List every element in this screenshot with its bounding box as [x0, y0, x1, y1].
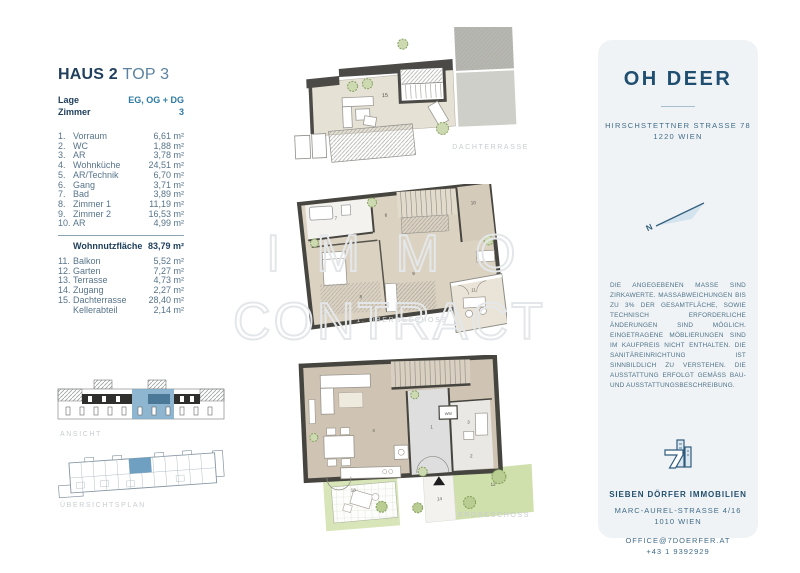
pillow [385, 283, 398, 312]
site-plan-drawing [56, 450, 226, 502]
info-row-lage: Lage EG, OG + DG [58, 94, 184, 106]
chair [372, 493, 379, 500]
dining-table [324, 435, 355, 458]
neighbor-roof-light [456, 70, 516, 126]
hallway [407, 388, 453, 475]
svg-text:12: 12 [491, 482, 497, 487]
elevation-drawing [56, 378, 226, 430]
agency-info-card: OH DEER HIRSCHSTETTNER STRASSE 78 1220 W… [598, 40, 758, 538]
project-address: HIRSCHSTETTNER STRASSE 78 1220 WIEN [598, 120, 758, 142]
balcony-table [463, 297, 486, 308]
page-title: HAUS 2 TOP 3 [58, 66, 184, 84]
room-name: Kellerabteil [73, 306, 153, 316]
info-row-zimmer: Zimmer 3 [58, 106, 184, 118]
project-address-line1: HIRSCHSTETTNER STRASSE 78 [598, 120, 758, 131]
chair [465, 310, 472, 317]
dark-band [174, 394, 200, 404]
company-address-line1: MARC-AUREL-STRASSE 4/16 [598, 505, 758, 516]
company-name: SIEBEN DÖRFER IMMOBILIEN [598, 490, 758, 499]
floorplan-document-page: { "unit": { "title_main": "HAUS 2", "tit… [0, 0, 800, 573]
company-phone: +43 1 9392929 [598, 546, 758, 557]
svg-text:14: 14 [437, 496, 443, 501]
roof-hatch-tab [94, 380, 112, 389]
bathtub [309, 206, 333, 220]
room-number: 15. [58, 296, 73, 306]
kitchen-counter [341, 466, 401, 479]
outdoor-row: Kellerabteil2,14 m² [58, 306, 184, 316]
divider [661, 106, 695, 107]
room-number: 10. [58, 219, 73, 229]
north-compass-icon: N [638, 194, 718, 236]
company-logo-icon [662, 437, 694, 477]
ground-floor-caption: ERDGESCHOSS [440, 512, 530, 519]
bed [322, 251, 347, 285]
total-area-row: Wohnnutzfläche 83,79 m² [58, 235, 184, 251]
room-area: 4,99 m² [153, 219, 184, 229]
svg-text:11: 11 [471, 287, 476, 292]
stairs-lower [401, 215, 449, 234]
info-label: Zimmer [58, 106, 91, 118]
info-value: 3 [179, 106, 184, 118]
company-address-line2: 1010 WIEN [598, 516, 758, 527]
floorplan-ground-floor: 4 1 3 2 WM 13 14 12 [286, 355, 534, 533]
company-address: MARC-AUREL-STRASSE 4/16 1010 WIEN [598, 505, 758, 527]
svg-text:13: 13 [351, 487, 357, 492]
room-number-label: 15 [382, 93, 388, 99]
toilet [341, 205, 351, 216]
disclaimer-text: DIE ANGEGEBENEN MASSE SIND ZIRKAWERTE. M… [610, 281, 746, 391]
storage-room [456, 184, 495, 242]
room-list: 1.Vorraum6,61 m² 2.WC1,88 m² 3.AR3,78 m²… [58, 132, 184, 229]
roof-hatch-tab [148, 380, 166, 389]
total-area: 83,79 m² [148, 241, 184, 251]
unit-title-main: HAUS 2 [58, 66, 118, 83]
kitchen-island [394, 445, 408, 459]
unit-summary-panel: HAUS 2 TOP 3 Lage EG, OG + DG Zimmer 3 1… [58, 66, 184, 315]
svg-text:WM: WM [445, 411, 452, 416]
unit-title-sub: TOP 3 [123, 66, 170, 83]
total-label: Wohnnutzfläche [73, 241, 148, 251]
desk [476, 250, 495, 262]
project-address-line2: 1220 WIEN [598, 131, 758, 142]
carpet [320, 281, 382, 315]
upper-floor-caption: 1. OBERGESCHOSS [346, 317, 458, 324]
sideboard [309, 399, 316, 423]
info-label: Lage [58, 94, 79, 106]
info-value: EG, OG + DG [128, 94, 184, 106]
north-label: N [644, 222, 654, 234]
site-plan-caption: ÜBERSICHTSPLAN [60, 502, 146, 509]
room-area: 2,14 m² [153, 306, 184, 316]
coffee-table [339, 392, 363, 408]
floorplan-roof-terrace: 15 [291, 27, 523, 163]
unit-highlight [129, 457, 152, 473]
room-number [58, 306, 73, 316]
project-name: OH DEER [598, 68, 758, 91]
room-name: AR [73, 219, 153, 229]
svg-text:10: 10 [471, 200, 477, 205]
company-email: OFFICE@7DOERFER.AT [598, 535, 758, 546]
outdoor-list: 11.Balkon5,52 m² 12.Garten7,27 m² 13.Ter… [58, 257, 184, 315]
room-row: 10.AR4,99 m² [58, 219, 184, 229]
unit-info: Lage EG, OG + DG Zimmer 3 [58, 94, 184, 118]
elevation-caption: ANSICHT [60, 431, 102, 438]
chair [479, 307, 486, 314]
company-contact: OFFICE@7DOERFER.AT +43 1 9392929 [598, 535, 758, 557]
roof-terrace-caption: DACHTERRASSE [437, 144, 529, 151]
